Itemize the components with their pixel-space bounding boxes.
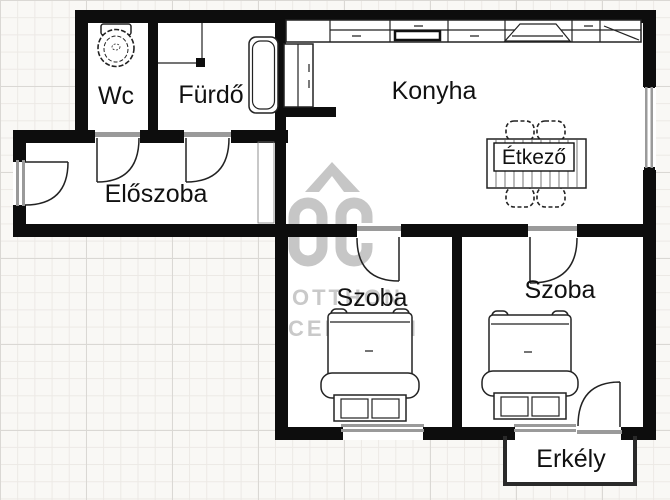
room2-door-opening bbox=[528, 226, 577, 231]
chair-icon bbox=[537, 121, 565, 141]
room1-door-opening bbox=[357, 226, 401, 231]
wall-hall-top-a bbox=[88, 130, 95, 143]
wall-bottom-b bbox=[423, 427, 515, 440]
bathroom-label: Fürdő bbox=[178, 81, 243, 109]
wall-mid-c bbox=[577, 224, 656, 237]
wall-room1-left bbox=[275, 237, 288, 440]
floor-plan: OTTHON CENTRUM bbox=[0, 0, 670, 500]
wc-fixtures bbox=[98, 24, 134, 67]
entrance-door-frame bbox=[16, 160, 19, 206]
wall-right-main bbox=[643, 170, 656, 440]
chair-icon bbox=[506, 187, 534, 207]
entrance-door-frame2 bbox=[22, 160, 25, 206]
balcony-label: Erkély bbox=[536, 445, 606, 473]
chair-icon bbox=[537, 187, 565, 207]
wall-wc-left bbox=[75, 10, 88, 143]
toilet-bowl-icon bbox=[98, 30, 134, 67]
bathtub-icon bbox=[249, 37, 278, 113]
floor-plan-page: OTTHON CENTRUM bbox=[0, 0, 670, 500]
chair-icon bbox=[506, 121, 534, 141]
balcony-door-sill bbox=[577, 430, 622, 434]
room2-label: Szoba bbox=[525, 276, 596, 304]
wall-mid-b bbox=[401, 224, 528, 237]
kitchen-label: Konyha bbox=[392, 77, 477, 105]
wall-rooms-divider bbox=[452, 237, 462, 427]
bathroom-duct bbox=[196, 58, 205, 67]
bed-icon bbox=[482, 311, 578, 419]
hallway-label: Előszoba bbox=[105, 180, 208, 208]
dining-label: Étkező bbox=[502, 146, 566, 169]
wall-hall-bottom bbox=[13, 224, 288, 237]
bed-icon bbox=[321, 309, 419, 421]
counter-run bbox=[286, 20, 641, 42]
wall-wc-bath-divider bbox=[148, 23, 158, 133]
wc-door-opening bbox=[95, 132, 140, 137]
room1-label: Szoba bbox=[337, 284, 408, 312]
wall-right-upper bbox=[643, 10, 656, 87]
wall-mid-a bbox=[288, 224, 357, 237]
wall-hall-left-lower bbox=[13, 205, 26, 237]
wc-label: Wc bbox=[98, 82, 134, 110]
wall-bottom-c bbox=[621, 427, 656, 440]
bathroom-door-opening bbox=[184, 132, 231, 137]
wall-hall-top-b bbox=[140, 130, 184, 143]
wall-kitchen-stub bbox=[286, 107, 336, 117]
sink-icon bbox=[395, 31, 440, 40]
